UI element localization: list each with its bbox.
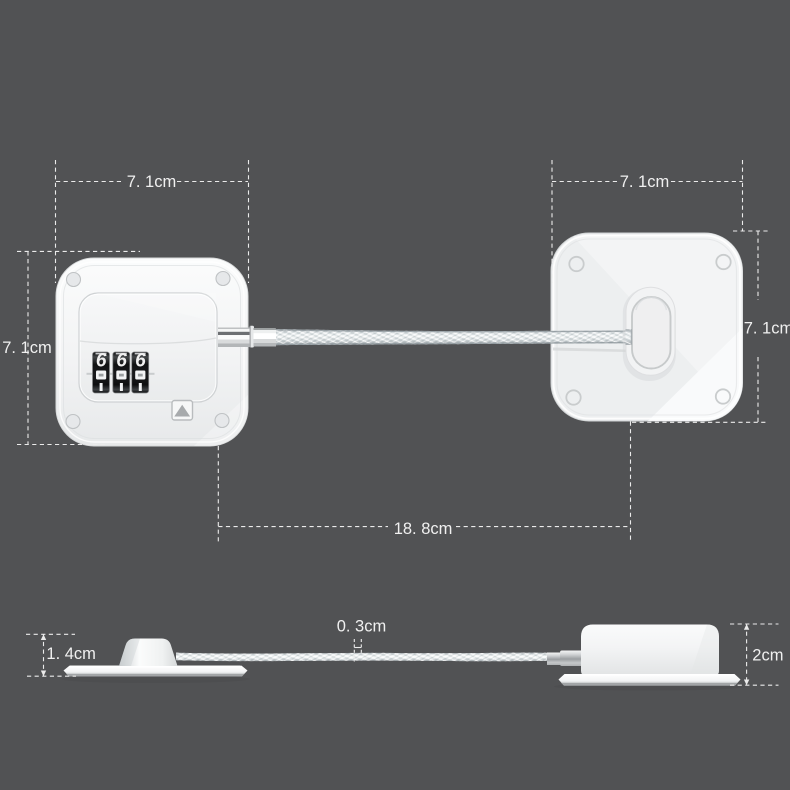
svg-text:2cm: 2cm <box>752 647 783 665</box>
svg-text:1. 4cm: 1. 4cm <box>46 645 96 663</box>
svg-text:18. 8cm: 18. 8cm <box>394 520 453 538</box>
svg-text:6: 6 <box>116 351 127 372</box>
svg-text:7. 1cm: 7. 1cm <box>2 339 52 357</box>
svg-text:7. 1cm: 7. 1cm <box>620 173 670 191</box>
svg-text:7. 1cm: 7. 1cm <box>127 173 177 191</box>
svg-text:6: 6 <box>135 351 146 372</box>
svg-text:7. 1cm: 7. 1cm <box>744 320 790 338</box>
svg-text:0. 3cm: 0. 3cm <box>337 618 387 636</box>
svg-text:6: 6 <box>96 351 107 372</box>
